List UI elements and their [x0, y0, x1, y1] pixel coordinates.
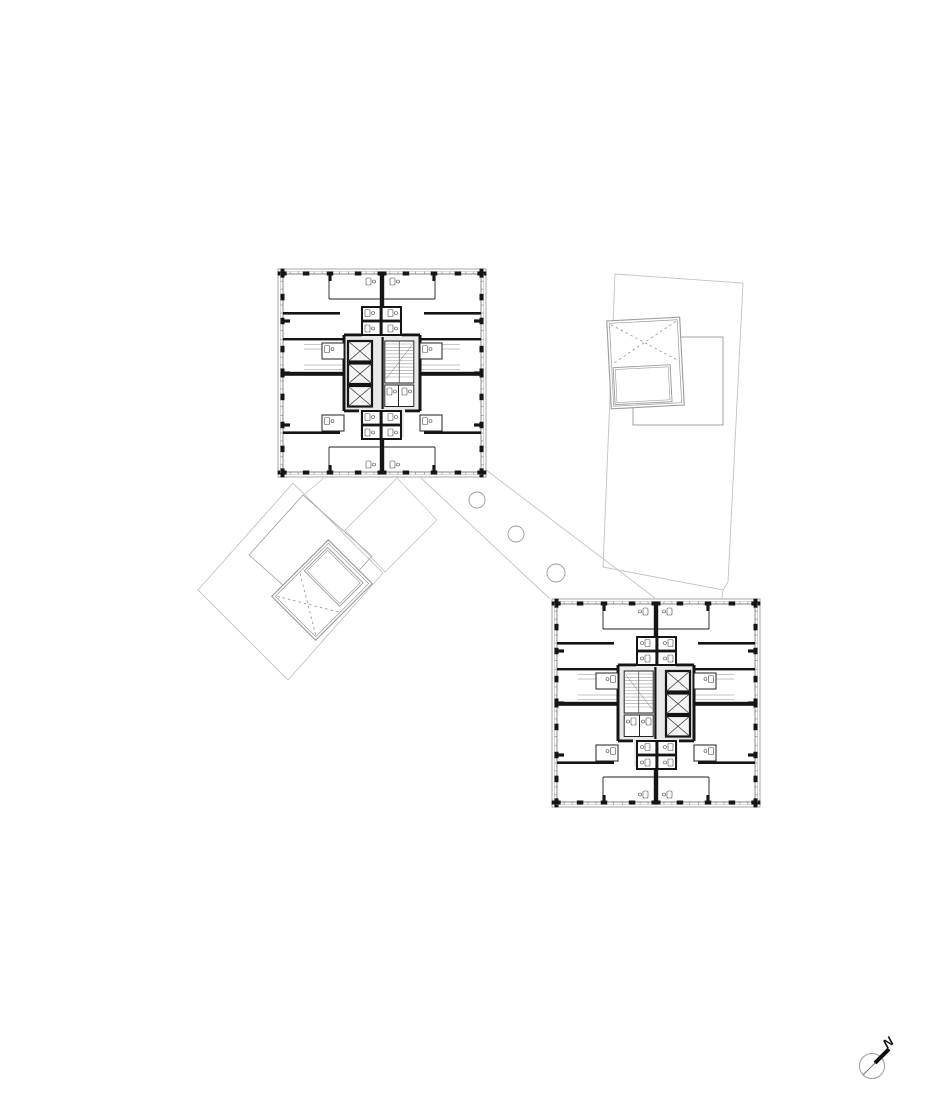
north-arrow-head [875, 1049, 889, 1063]
site-plan-page: N [0, 0, 952, 1100]
site-plan-canvas: N [0, 0, 952, 1100]
walkway-column [469, 492, 485, 508]
connecting-walkway [421, 470, 655, 599]
tower-northwest-plan [278, 269, 487, 478]
skylight-shaft [607, 317, 685, 409]
north-arrow-shaft [863, 1061, 877, 1075]
north-arrow-label: N [880, 1033, 897, 1051]
skylight-shaft [272, 540, 372, 640]
north-arrow: N [860, 1033, 897, 1078]
walkway-column [508, 526, 524, 542]
walkway-column [547, 564, 565, 582]
southwest-outline-building [198, 478, 437, 680]
northeast-outline-building [603, 274, 743, 599]
tower-southeast-plan [552, 599, 761, 808]
